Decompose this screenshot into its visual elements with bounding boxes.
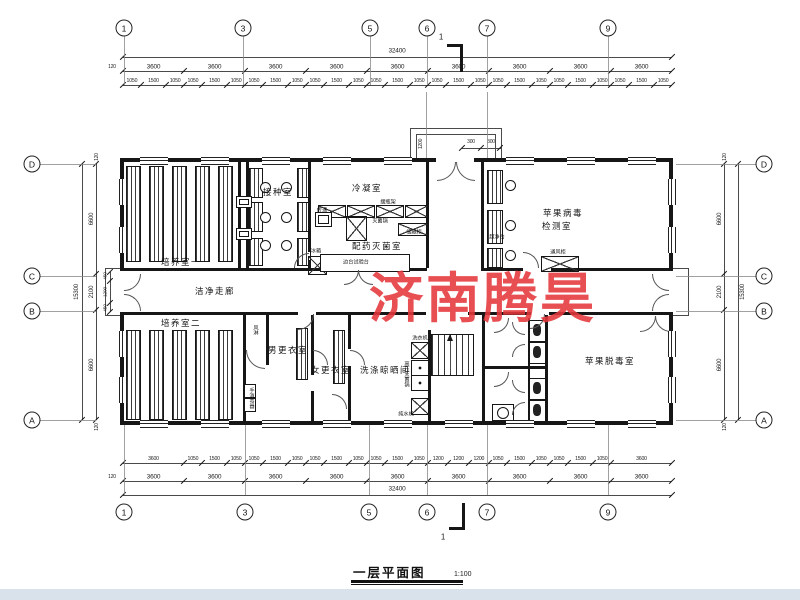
porch-line	[501, 128, 502, 158]
dim-label: 3600	[147, 473, 161, 480]
dim-label: 3600	[574, 63, 588, 70]
toilet-fixture	[533, 382, 541, 394]
door-arc	[494, 372, 509, 387]
section-mark-line	[460, 44, 463, 72]
dim-label: 1500	[331, 78, 342, 84]
window	[384, 420, 412, 428]
grid-bubble-6: 6	[419, 504, 436, 521]
dim-label: 1050	[249, 456, 260, 462]
dim-label: 3600	[208, 63, 222, 70]
dim-label: 1050	[658, 78, 669, 84]
dim-label: 6600	[89, 213, 95, 226]
dim-label: 1500	[331, 456, 342, 462]
dim-label: 1200	[433, 456, 444, 462]
dim-label: 1050	[554, 78, 565, 84]
dim-label: 1500	[636, 78, 647, 84]
grid-bubble-B: B	[756, 303, 773, 320]
window	[668, 377, 676, 403]
culture-rack	[126, 330, 141, 420]
drawing-title: 一层平面图	[353, 562, 426, 581]
grid-line	[427, 36, 428, 85]
stool	[260, 240, 271, 251]
grid-line	[40, 311, 96, 312]
floorplan-canvas: 3240036003600360036003600360036003600360…	[0, 0, 800, 600]
dim-label: 450	[103, 304, 108, 311]
grid-bubble-7: 7	[479, 504, 496, 521]
dim-label: 3600	[513, 473, 527, 480]
window	[119, 377, 127, 403]
dim-label: 1050	[371, 78, 382, 84]
porch-line	[673, 268, 688, 269]
dim-label: 1050	[188, 456, 199, 462]
grid-bubble-D: D	[24, 156, 41, 173]
room-label: 冷凝室	[352, 182, 382, 194]
grid-bubble-9: 9	[600, 20, 617, 37]
drawing-scale: 1:100	[454, 571, 472, 578]
door-arc	[350, 350, 365, 365]
culture-rack	[126, 166, 141, 262]
room-label: 检测室	[542, 220, 572, 232]
dim-label: 1050	[292, 78, 303, 84]
stool	[281, 212, 292, 223]
door-arc	[246, 350, 265, 369]
bottom-band	[0, 589, 800, 600]
dim-label: 1500	[270, 456, 281, 462]
toilet-fixture	[533, 404, 541, 416]
pass-through-window	[236, 196, 252, 208]
dim-line	[123, 57, 672, 58]
dim-label: 3600	[391, 63, 405, 70]
dim-tick	[669, 478, 675, 484]
door-arc	[313, 350, 328, 365]
grid-line	[40, 420, 96, 421]
grid-line	[487, 425, 488, 495]
dim-label: 3600	[636, 456, 647, 462]
window	[323, 420, 351, 428]
wall	[120, 312, 124, 425]
porch-line	[416, 134, 417, 158]
dim-label: 1500	[209, 78, 220, 84]
wall	[484, 366, 545, 369]
stool	[505, 180, 516, 191]
room-label: 男更衣室	[268, 344, 308, 356]
dim-label: 1050	[353, 78, 364, 84]
dim-label: 450	[103, 273, 108, 280]
window	[119, 227, 127, 253]
window	[506, 157, 534, 165]
door-arc	[344, 270, 359, 285]
dim-tick	[669, 460, 675, 466]
dim-tick	[669, 68, 675, 74]
equipment-label: 储藏柜	[406, 229, 422, 236]
porch-line	[495, 134, 496, 158]
dim-label: 1050	[310, 78, 321, 84]
dim-label: 1500	[514, 456, 525, 462]
grid-line	[608, 425, 609, 495]
grid-line	[487, 92, 488, 158]
dim-label: 1050	[292, 456, 303, 462]
dim-label: 1050	[493, 78, 504, 84]
porch-line	[410, 128, 411, 158]
equipment-label: 摆瓶架	[380, 199, 396, 206]
dim-tick	[669, 492, 675, 498]
room-label: 洁净走廊	[195, 285, 235, 297]
window	[668, 227, 676, 253]
dim-label: 2100	[717, 286, 723, 299]
grid-line	[369, 425, 370, 495]
dim-label: 120	[94, 423, 100, 431]
dim-label: 1050	[170, 78, 181, 84]
equipment-label: 冰箱	[311, 248, 321, 255]
grid-bubble-A: A	[24, 412, 41, 429]
grid-line	[243, 36, 244, 85]
door-arc	[655, 316, 671, 332]
grid-bubble-A: A	[756, 412, 773, 429]
culture-rack	[172, 330, 187, 420]
dim-label: 2100	[89, 286, 95, 299]
dim-line	[123, 71, 672, 72]
dim-label: 1200	[453, 456, 464, 462]
dim-line	[82, 164, 83, 420]
window	[201, 157, 229, 165]
stair-arrow-line	[450, 340, 451, 373]
dim-label: 1050	[615, 78, 626, 84]
stool	[260, 212, 271, 223]
dim-label: 1500	[270, 78, 281, 84]
dim-label: 1050	[414, 78, 425, 84]
grid-bubble-9: 9	[600, 504, 617, 521]
dim-label: 120	[722, 423, 728, 431]
wall	[348, 315, 351, 349]
dim-label: 3600	[148, 456, 159, 462]
dim-label: 1500	[575, 456, 586, 462]
dim-line	[724, 164, 725, 420]
dim-label: 6600	[89, 359, 95, 372]
section-mark-label: 1	[439, 33, 443, 42]
grid-line	[608, 36, 609, 85]
window	[140, 157, 168, 165]
dim-label: 1050	[127, 78, 138, 84]
dim-tick	[669, 54, 675, 60]
washbasin	[497, 407, 509, 419]
x-bench	[405, 205, 428, 218]
culture-rack	[218, 330, 233, 420]
window	[201, 420, 229, 428]
wall	[120, 312, 298, 315]
title-underline	[351, 580, 463, 583]
dim-label: 1050	[414, 456, 425, 462]
grid-bubble-6: 6	[419, 20, 436, 37]
culture-rack	[172, 166, 187, 262]
dim-label: 3600	[452, 63, 466, 70]
bench	[297, 168, 311, 198]
pass-through-window	[315, 212, 332, 227]
wall	[266, 315, 269, 365]
dim-line	[96, 164, 97, 420]
stool	[505, 220, 516, 231]
room-label: 接种室	[263, 186, 293, 198]
title-underline-thin	[351, 584, 463, 585]
bench	[487, 170, 503, 204]
grid-line	[370, 36, 371, 85]
culture-rack	[195, 330, 210, 420]
window	[262, 420, 290, 428]
door-arc	[332, 394, 347, 409]
grid-line	[427, 425, 428, 495]
window	[119, 331, 127, 357]
dim-label: 3600	[452, 473, 466, 480]
dim-label: 15300	[74, 284, 80, 300]
dim-label: 1050	[432, 78, 443, 84]
dim-label: 300	[467, 139, 475, 145]
grid-bubble-B: B	[24, 303, 41, 320]
door-arc	[512, 344, 525, 357]
window	[262, 157, 290, 165]
dim-label: 32400	[388, 486, 405, 493]
equipment-label: 洗衣机	[412, 335, 428, 342]
grid-line	[245, 425, 246, 495]
grid-line	[40, 164, 96, 165]
dim-label: 1050	[249, 78, 260, 84]
dim-label: 120	[108, 474, 116, 480]
window	[140, 420, 168, 428]
window	[668, 179, 676, 205]
door-arc	[652, 274, 669, 291]
dim-label: 1500	[514, 78, 525, 84]
section-mark-line	[462, 503, 465, 530]
equipment-label: 纯水机	[398, 411, 414, 418]
dim-label: 1050	[493, 456, 504, 462]
equipment-label: 高压灭菌锅	[404, 361, 411, 387]
dim-label: 120	[94, 153, 100, 161]
toilet-fixture	[533, 346, 541, 358]
dim-tick	[497, 145, 503, 151]
door-arc	[512, 380, 525, 393]
dim-label: 1500	[575, 78, 586, 84]
culture-rack	[149, 166, 164, 262]
dim-label: 120	[722, 153, 728, 161]
equipment-label: 超净台	[489, 234, 505, 241]
grid-bubble-C: C	[24, 268, 41, 285]
window	[445, 420, 473, 428]
dim-label: 1050	[310, 456, 321, 462]
dim-label: 1500	[392, 456, 403, 462]
grid-line	[676, 164, 757, 165]
grid-line	[124, 36, 125, 85]
porch-line	[410, 128, 502, 129]
autoclave-box	[411, 375, 429, 391]
dim-label: 1500	[209, 456, 220, 462]
dim-label: 1050	[353, 456, 364, 462]
culture-rack	[149, 330, 164, 420]
section-mark-label: 1	[441, 533, 445, 542]
dim-label: 1050	[371, 456, 382, 462]
dim-label: 1050	[231, 78, 242, 84]
grid-bubble-3: 3	[237, 504, 254, 521]
dim-label: 1500	[392, 78, 403, 84]
watermark-text: 济南腾昊	[369, 254, 597, 333]
grid-bubble-5: 5	[362, 20, 379, 37]
dim-label: 6600	[717, 213, 723, 226]
dim-label: 3600	[147, 63, 161, 70]
bench	[297, 202, 311, 232]
pass-through-window	[236, 228, 252, 240]
equipment-label: 灭菌锅	[372, 218, 388, 225]
dim-label: 3600	[269, 63, 283, 70]
dim-label: 1050	[554, 456, 565, 462]
dim-label: 3600	[208, 473, 222, 480]
wall	[238, 162, 241, 268]
dim-label: 1500	[148, 78, 159, 84]
dim-label: 300	[487, 139, 495, 145]
room-label: 配药灭菌室	[352, 240, 402, 252]
dim-label: 3600	[269, 473, 283, 480]
room-label: 苹果脱毒室	[585, 355, 635, 367]
wall	[311, 391, 314, 424]
dim-label: 3600	[391, 473, 405, 480]
dim-label: 1500	[453, 78, 464, 84]
grid-line	[426, 92, 427, 158]
grid-line	[124, 425, 125, 495]
stool	[281, 240, 292, 251]
grid-bubble-D: D	[756, 156, 773, 173]
dim-label: 1050	[597, 456, 608, 462]
stair-arrow-head	[447, 334, 453, 341]
dim-label: 1050	[536, 456, 547, 462]
dim-label: 3600	[330, 63, 344, 70]
dim-line	[123, 481, 672, 482]
dim-label: 32400	[388, 48, 405, 55]
dim-label: 120	[108, 64, 116, 70]
dim-line	[738, 164, 739, 420]
window	[567, 420, 595, 428]
porch-line	[416, 134, 496, 135]
equipment-box	[411, 342, 429, 359]
culture-rack	[195, 166, 210, 262]
dim-line	[123, 495, 672, 496]
dim-label: 3600	[635, 473, 649, 480]
dim-label: 1200	[103, 287, 108, 297]
room-label: 培养室一	[161, 256, 201, 268]
grid-bubble-7: 7	[479, 20, 496, 37]
equipment-label: 边台试验台	[343, 259, 369, 266]
window	[506, 420, 534, 428]
equipment-label: 手消毒器	[249, 388, 256, 409]
dim-label: 1050	[188, 78, 199, 84]
porch-line	[673, 315, 688, 316]
room-label: 培养室二	[161, 317, 201, 329]
dim-label: 1200	[473, 456, 484, 462]
dim-label: 1050	[597, 78, 608, 84]
dim-label: 1200	[418, 139, 424, 149]
dim-label: 6600	[717, 359, 723, 372]
window	[567, 157, 595, 165]
grid-bubble-5: 5	[361, 504, 378, 521]
door-arc	[124, 274, 141, 291]
grid-line	[676, 420, 757, 421]
door-arc	[456, 162, 475, 181]
dim-label: 3600	[330, 473, 344, 480]
dim-label: 3600	[635, 63, 649, 70]
grid-bubble-1: 1	[116, 504, 133, 521]
dim-tick	[669, 82, 675, 88]
door-arc	[124, 294, 141, 311]
window	[628, 420, 656, 428]
equipment-box	[346, 216, 367, 241]
grid-line	[676, 276, 757, 277]
grid-bubble-3: 3	[235, 20, 252, 37]
equipment-label: 传递	[317, 207, 327, 214]
autoclave-box	[411, 360, 429, 376]
window	[384, 157, 412, 165]
grid-bubble-C: C	[756, 268, 773, 285]
culture-rack	[218, 166, 233, 262]
window	[628, 157, 656, 165]
room-label: 女更衣室	[311, 364, 351, 376]
dim-label: 15300	[740, 284, 746, 300]
window	[119, 179, 127, 205]
room-label: 苹果病毒	[543, 207, 583, 219]
dim-label: 3600	[574, 473, 588, 480]
grid-line	[676, 311, 757, 312]
window	[668, 331, 676, 357]
dim-label: 1050	[536, 78, 547, 84]
grid-bubble-1: 1	[116, 20, 133, 37]
x-bench	[376, 205, 404, 218]
room-label: 洗涤晾晒间	[360, 364, 410, 376]
wall	[481, 162, 484, 268]
dim-label: 3600	[513, 63, 527, 70]
door-arc	[652, 294, 669, 311]
door-arc	[437, 162, 456, 181]
dim-label: 1050	[231, 456, 242, 462]
equipment-label: 风淋	[253, 325, 260, 335]
window	[323, 157, 351, 165]
grid-line	[40, 276, 96, 277]
door-arc	[640, 316, 656, 332]
grid-line	[487, 36, 488, 85]
dim-label: 1050	[475, 78, 486, 84]
